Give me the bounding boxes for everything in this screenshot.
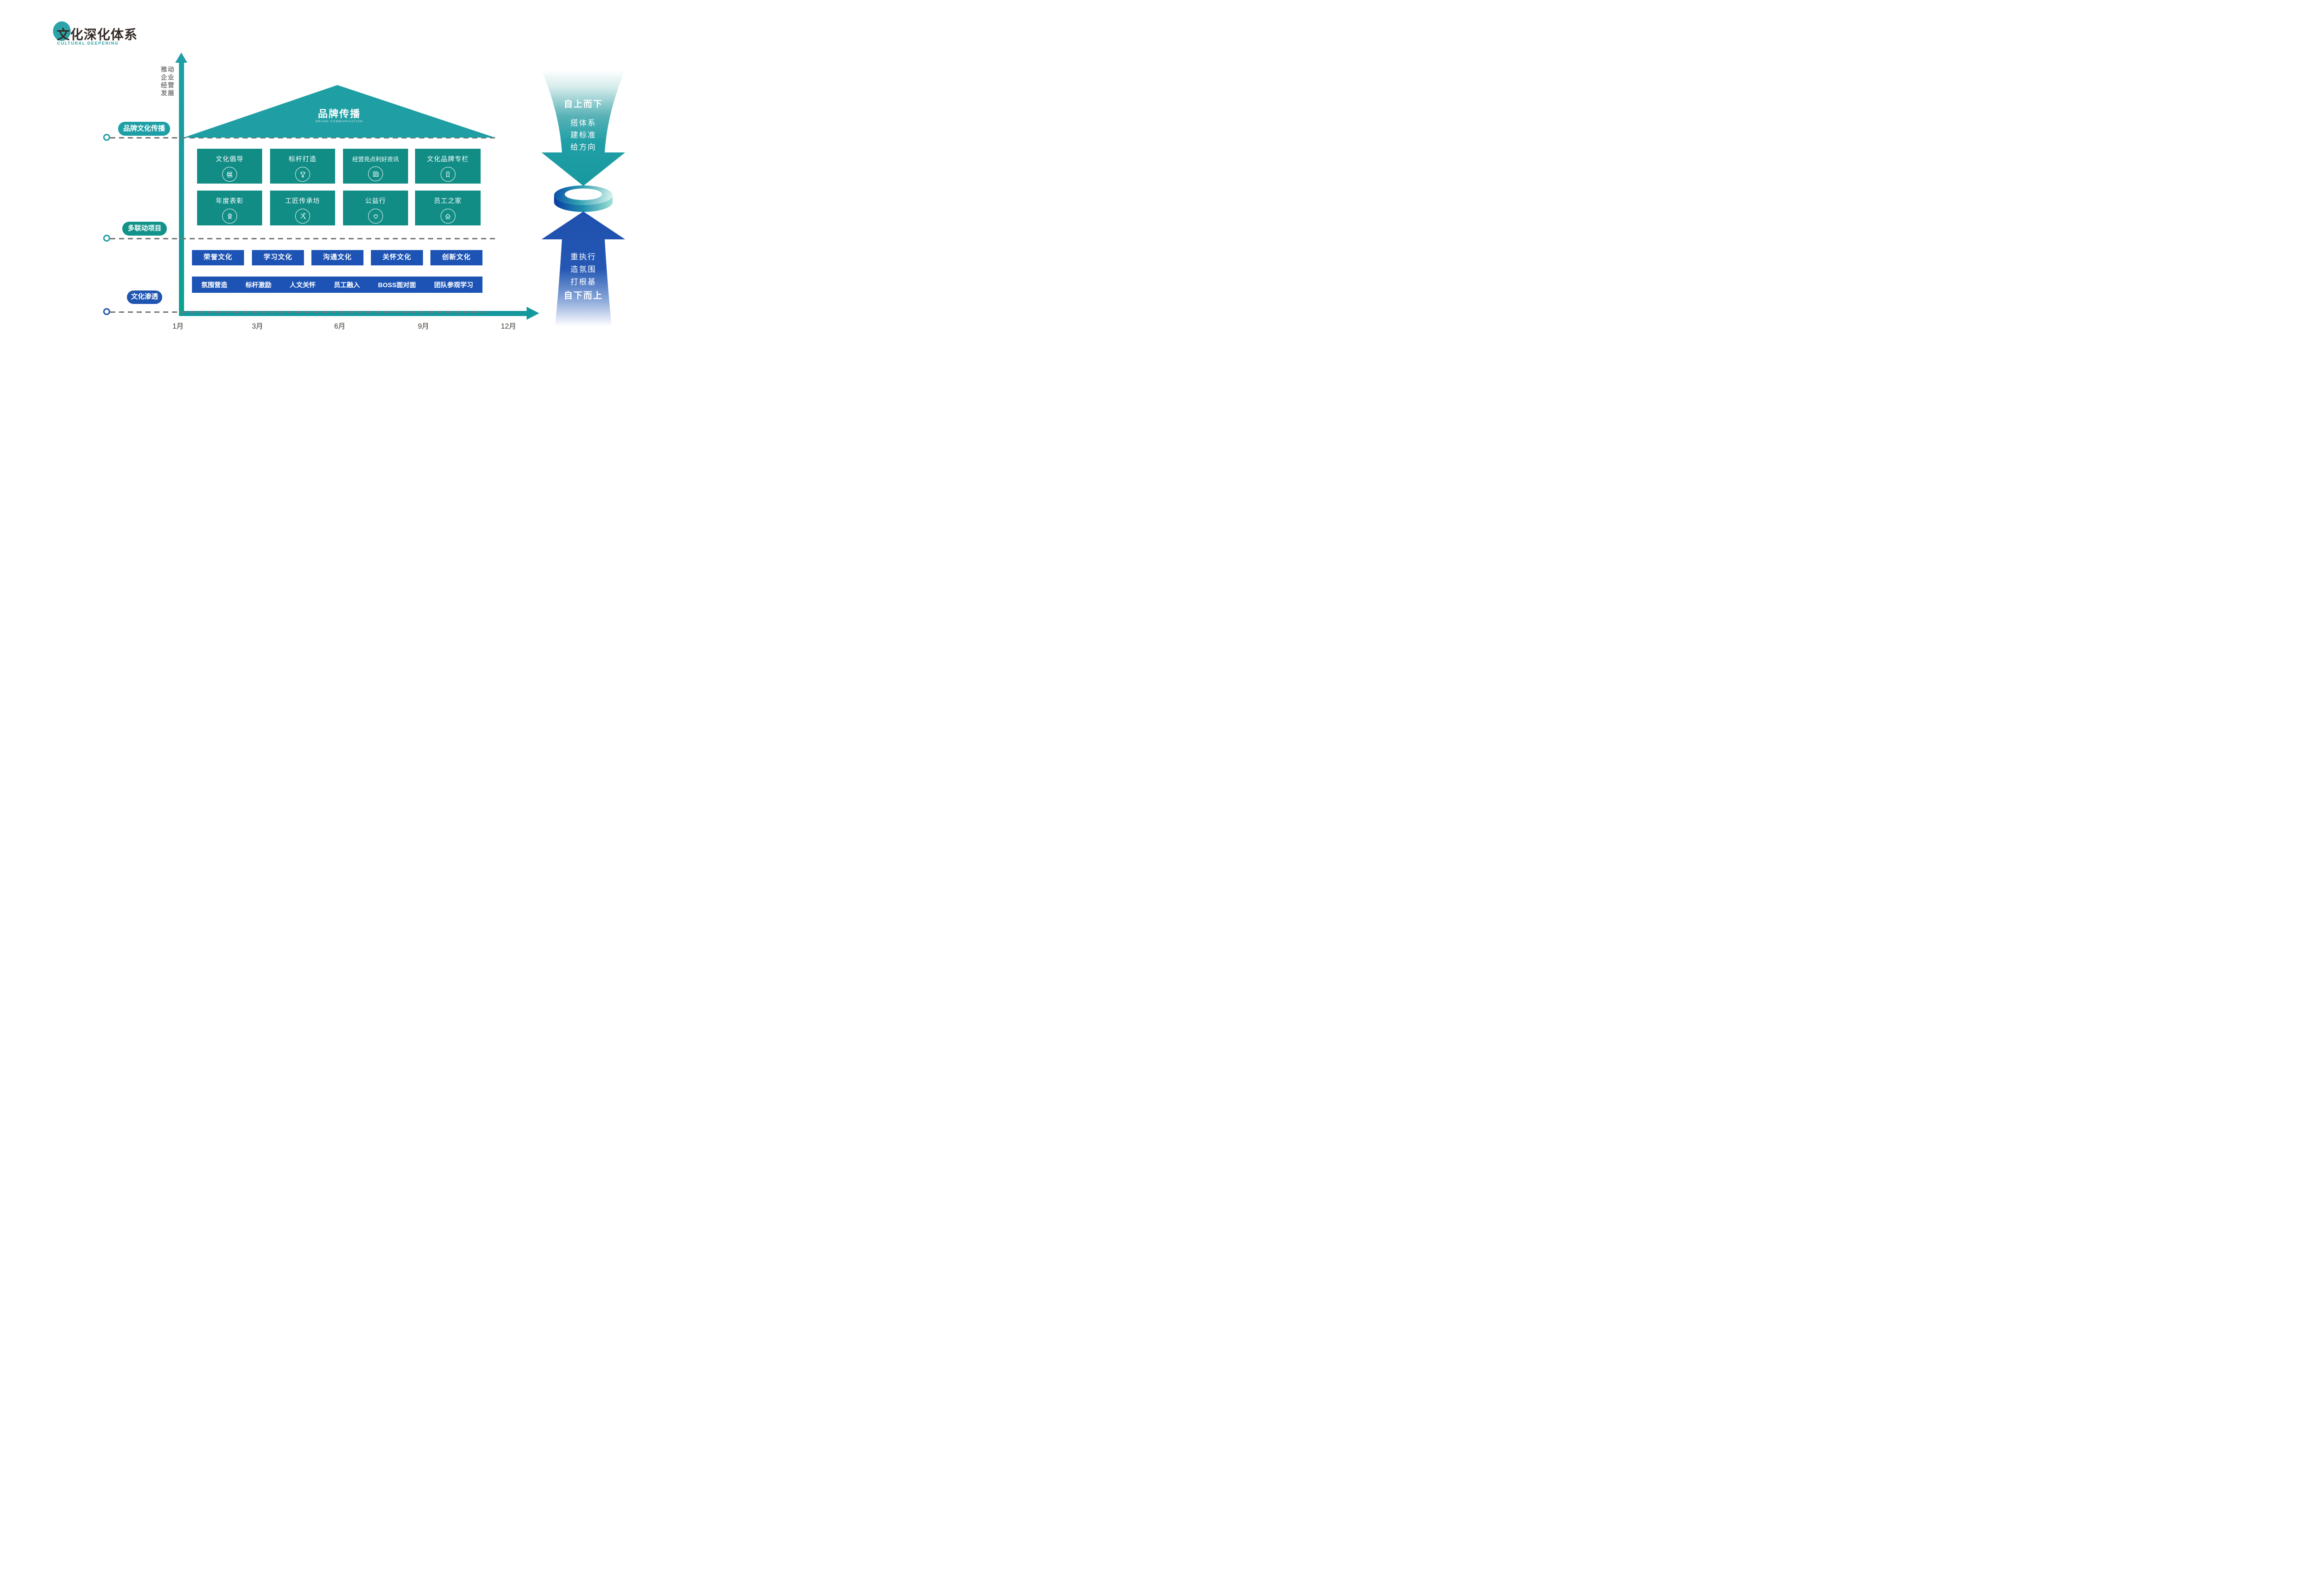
month-tick: 9月	[405, 321, 442, 331]
month-tick: 3月	[239, 321, 276, 331]
roof-title: 品牌传播	[184, 106, 495, 120]
program-box: 工匠传承坊	[270, 191, 335, 225]
penetration-item: 人文关怀	[290, 280, 316, 290]
news-icon	[368, 166, 383, 181]
dashed-line-penetration	[110, 311, 485, 313]
dash-dot-icon	[103, 134, 110, 141]
y-axis-label-line: 经营	[161, 81, 178, 89]
y-axis-line	[179, 62, 184, 316]
program-box-label: 公益行	[343, 196, 408, 205]
down-arrow-line: 给方向	[570, 143, 596, 152]
x-axis-arrowhead-icon	[527, 307, 539, 320]
heart-icon	[368, 209, 383, 224]
home-icon	[441, 209, 456, 224]
month-tick: 1月	[159, 321, 197, 331]
penetration-item: BOSS面对面	[378, 280, 416, 290]
month-tick: 6月	[321, 321, 358, 331]
dashed-line-linkage	[110, 238, 495, 239]
y-axis-arrowhead-icon	[175, 53, 187, 63]
program-box-label: 文化品牌专栏	[415, 154, 481, 164]
penetration-item: 团队参观学习	[434, 280, 473, 290]
program-box-label: 工匠传承坊	[270, 196, 335, 205]
bookmark-icon	[441, 167, 456, 182]
tools-icon	[295, 209, 310, 224]
down-arrow-line: 建标准	[570, 131, 596, 139]
medal-icon	[222, 209, 237, 224]
y-axis-label: 推动 企业 经营 发展	[161, 66, 178, 97]
dash-dot-icon	[103, 308, 110, 315]
culture-box: 沟通文化	[311, 250, 363, 265]
page-subtitle: CULTURAL DEEPENING	[57, 41, 119, 46]
month-tick: 12月	[490, 321, 527, 331]
penetration-bar: 氛围营造 标杆激励 人文关怀 员工融入 BOSS面对面 团队参观学习	[192, 277, 482, 293]
penetration-item: 氛围营造	[201, 280, 227, 290]
roof-subtitle: BRAND COMMUNICATION	[184, 120, 495, 123]
culture-box: 学习文化	[252, 250, 304, 265]
penetration-item: 员工融入	[334, 280, 360, 290]
program-box: 年度表彰	[197, 191, 262, 225]
row-label-multi-linkage: 多联动项目	[122, 222, 167, 236]
up-arrow-line: 重执行	[570, 252, 596, 261]
program-box: 经营亮点利好资讯	[343, 149, 408, 184]
up-arrow-line: 造氛围	[570, 265, 596, 274]
disc-icon	[554, 185, 613, 212]
program-box-label: 文化倡导	[197, 154, 262, 164]
program-box-label: 标杆打造	[270, 154, 335, 164]
program-box-label: 员工之家	[415, 196, 481, 205]
program-box: 员工之家	[415, 191, 481, 225]
down-arrow-line: 搭体系	[570, 119, 596, 127]
down-arrow-headline: 自上而下	[564, 99, 603, 109]
roof-brand-communication: 品牌传播 BRAND COMMUNICATION	[184, 85, 495, 138]
program-box: 文化倡导	[197, 149, 262, 184]
y-axis-label-line: 推动	[161, 66, 178, 73]
top-down-bottom-up-flow: 自上而下 搭体系 建标准 给方向 重执行 造氛围 打根基 自下而上	[539, 70, 627, 330]
dash-dot-icon	[103, 235, 110, 242]
program-box-label: 经营亮点利好资讯	[343, 154, 408, 163]
culture-deepening-diagram: 文化深化体系 CULTURAL DEEPENING 推动 企业 经营 发展 品牌…	[0, 0, 729, 353]
program-box: 标杆打造	[270, 149, 335, 184]
culture-box: 创新文化	[430, 250, 482, 265]
y-axis-label-line: 发展	[161, 89, 178, 97]
program-box: 文化品牌专栏	[415, 149, 481, 184]
up-arrow-headline: 自下而上	[564, 290, 603, 301]
trophy-icon	[295, 167, 310, 182]
culture-box: 关怀文化	[371, 250, 423, 265]
books-icon	[222, 167, 237, 182]
page-title: 文化深化体系	[57, 25, 138, 43]
row-label-brand-culture: 品牌文化传播	[118, 122, 170, 136]
program-box: 公益行	[343, 191, 408, 225]
y-axis-label-line: 企业	[161, 73, 178, 81]
row-label-penetration: 文化渗透	[127, 290, 162, 304]
penetration-item: 标杆激励	[245, 280, 271, 290]
up-arrow-line: 打根基	[570, 277, 596, 286]
down-arrow-icon	[541, 70, 625, 186]
program-box-label: 年度表彰	[197, 196, 262, 205]
culture-box: 荣誉文化	[192, 250, 244, 265]
